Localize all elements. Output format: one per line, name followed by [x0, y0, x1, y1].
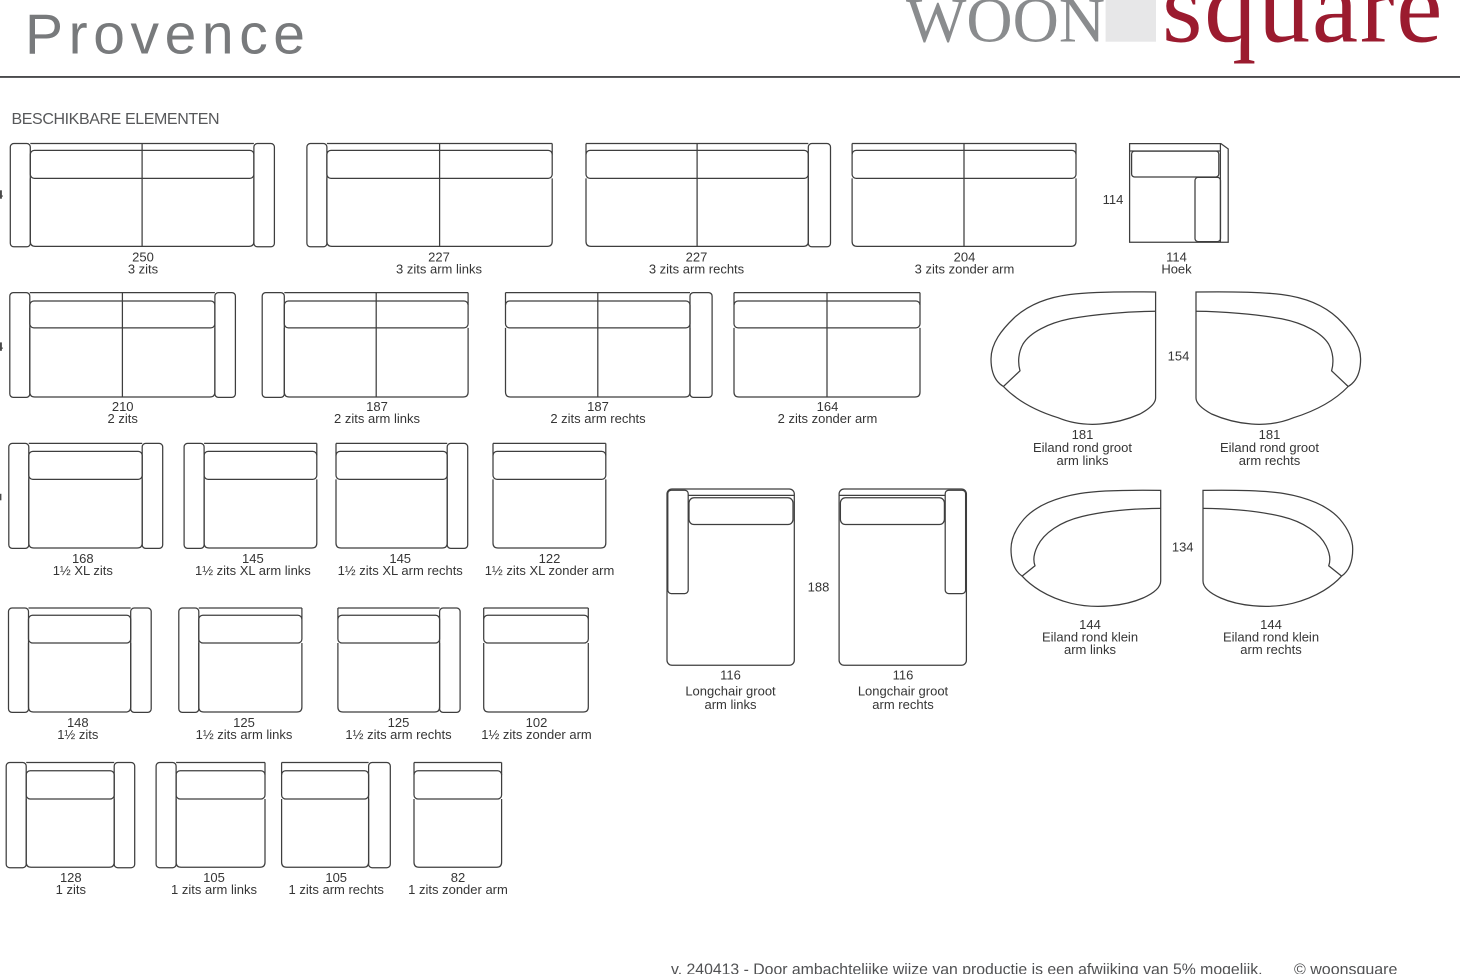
svg-text:1 zits arm links: 1 zits arm links — [171, 882, 257, 897]
svg-text:1½ zits: 1½ zits — [57, 727, 99, 742]
svg-text:arm rechts: arm rechts — [872, 697, 934, 712]
svg-text:3 zits zonder arm: 3 zits zonder arm — [915, 262, 1015, 277]
svg-text:2 zits arm rechts: 2 zits arm rechts — [550, 411, 646, 426]
svg-text:square: square — [1162, 0, 1444, 65]
svg-text:BESCHIKBARE ELEMENTEN: BESCHIKBARE ELEMENTEN — [12, 111, 220, 128]
svg-text:116: 116 — [720, 668, 741, 683]
svg-text:2 zits: 2 zits — [108, 411, 139, 426]
svg-text:154: 154 — [1168, 349, 1190, 364]
svg-text:v. 240413 - Door ambachtelijke: v. 240413 - Door ambachtelijke wijze van… — [671, 962, 1263, 974]
svg-text:Hoek: Hoek — [1161, 262, 1192, 277]
svg-text:1½ zits zonder arm: 1½ zits zonder arm — [481, 727, 592, 742]
svg-text:1 zits zonder arm: 1 zits zonder arm — [408, 882, 508, 897]
svg-text:116: 116 — [893, 668, 914, 683]
svg-text:arm rechts: arm rechts — [1240, 642, 1302, 657]
svg-text:arm links: arm links — [1056, 453, 1109, 468]
svg-text:1½ XL zits: 1½ XL zits — [53, 563, 114, 578]
svg-text:1½ zits XL zonder arm: 1½ zits XL zonder arm — [485, 563, 615, 578]
svg-text:1 zits arm rechts: 1 zits arm rechts — [289, 882, 385, 897]
svg-text:1½ zits XL arm rechts: 1½ zits XL arm rechts — [338, 563, 464, 578]
svg-text:134: 134 — [1172, 540, 1194, 555]
svg-text:arm links: arm links — [1064, 642, 1117, 657]
svg-text:114: 114 — [1103, 192, 1124, 207]
svg-text:188: 188 — [808, 579, 830, 594]
svg-text:WOON: WOON — [906, 0, 1105, 56]
svg-text:arm links: arm links — [704, 697, 757, 712]
svg-text:arm rechts: arm rechts — [1239, 453, 1301, 468]
svg-text:1 zits: 1 zits — [56, 882, 87, 897]
svg-text:1½ zits arm rechts: 1½ zits arm rechts — [345, 727, 452, 742]
svg-text:1½ zits XL arm links: 1½ zits XL arm links — [195, 563, 311, 578]
svg-text:© woonsquare: © woonsquare — [1294, 962, 1398, 974]
svg-text:3 zits arm links: 3 zits arm links — [396, 262, 482, 277]
svg-text:Provence: Provence — [25, 3, 311, 67]
svg-text:2 zits arm links: 2 zits arm links — [334, 411, 420, 426]
svg-text:1½ zits arm links: 1½ zits arm links — [196, 727, 293, 742]
svg-text:3 zits arm rechts: 3 zits arm rechts — [649, 262, 745, 277]
svg-text:3 zits: 3 zits — [128, 262, 159, 277]
svg-text:2 zits zonder arm: 2 zits zonder arm — [778, 411, 878, 426]
